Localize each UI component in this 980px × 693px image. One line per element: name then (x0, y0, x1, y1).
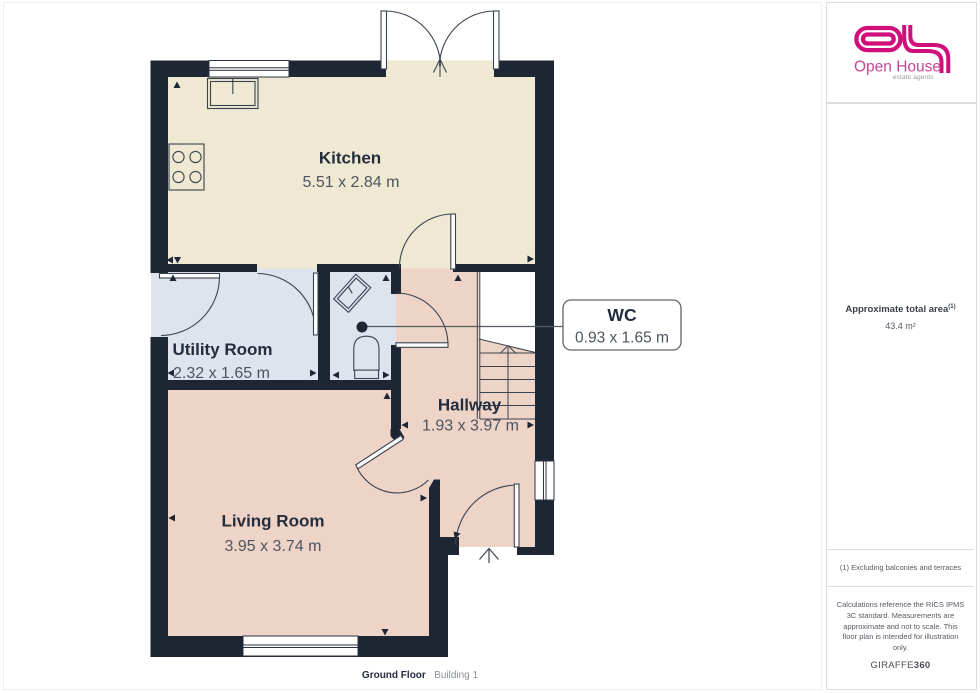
svg-text:Open House: Open House (854, 59, 941, 76)
svg-text:3.95 x 3.74 m: 3.95 x 3.74 m (225, 538, 322, 555)
svg-text:0.93 x 1.65 m: 0.93 x 1.65 m (575, 330, 669, 347)
svg-text:Hallway: Hallway (438, 396, 502, 415)
svg-text:Utility Room: Utility Room (172, 340, 272, 359)
svg-text:WC: WC (607, 305, 637, 325)
svg-text:estate agents: estate agents (893, 74, 934, 81)
svg-text:5.51 x 2.84 m: 5.51 x 2.84 m (303, 174, 400, 191)
svg-text:2.32 x 1.65 m: 2.32 x 1.65 m (173, 365, 270, 382)
svg-text:Kitchen: Kitchen (319, 149, 381, 168)
svg-text:Living Room: Living Room (222, 512, 325, 531)
svg-text:1.93 x 3.97 m: 1.93 x 3.97 m (422, 418, 519, 435)
